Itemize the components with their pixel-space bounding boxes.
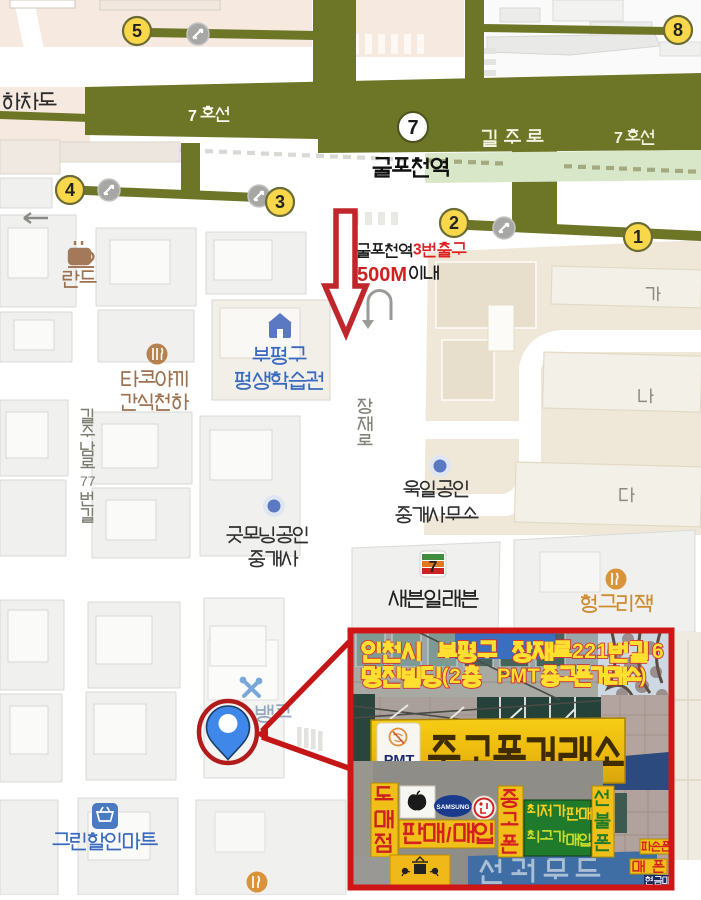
svg-text:3: 3: [275, 192, 285, 212]
svg-text:5: 5: [132, 21, 142, 41]
svg-text:3: 3: [413, 242, 422, 259]
svg-text:7: 7: [429, 559, 438, 576]
svg-text:2: 2: [449, 665, 461, 688]
svg-text:): ): [640, 665, 647, 687]
svg-text:T: T: [528, 665, 540, 687]
svg-text:2: 2: [572, 640, 584, 663]
svg-text:7: 7: [188, 108, 197, 125]
svg-text:2: 2: [449, 213, 459, 233]
svg-text:P: P: [497, 665, 510, 687]
svg-text:/: /: [446, 825, 452, 847]
svg-text:1: 1: [633, 227, 643, 247]
svg-text:6: 6: [652, 640, 664, 663]
svg-text:SAMSUNG: SAMSUNG: [436, 804, 469, 811]
svg-text:(: (: [442, 665, 449, 688]
svg-text:1: 1: [596, 640, 608, 663]
svg-text:500M: 500M: [357, 264, 407, 286]
svg-text:7: 7: [614, 130, 623, 147]
svg-text:7: 7: [407, 117, 418, 139]
svg-text:77: 77: [80, 473, 96, 489]
svg-text:8: 8: [673, 20, 683, 40]
svg-text:2: 2: [584, 640, 596, 663]
svg-text:4: 4: [65, 180, 75, 200]
svg-text:M: M: [510, 665, 527, 687]
